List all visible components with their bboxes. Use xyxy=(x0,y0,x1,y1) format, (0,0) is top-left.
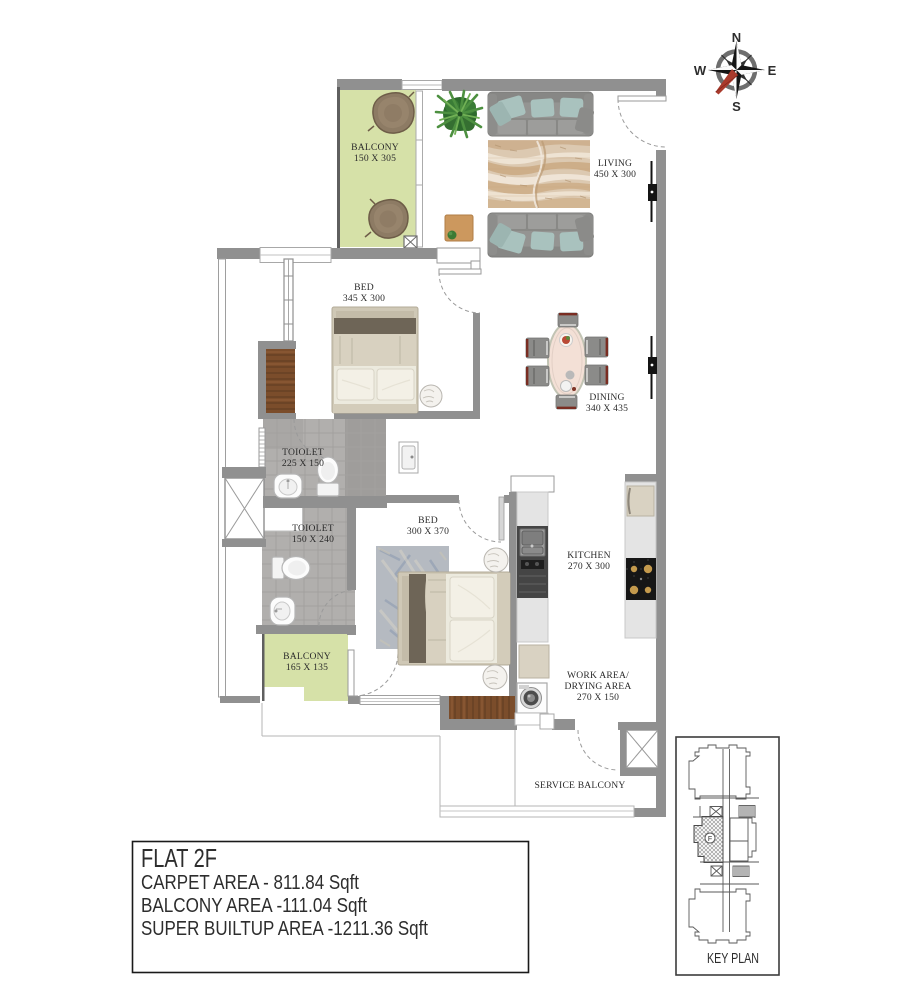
svg-text:150 X 305: 150 X 305 xyxy=(354,153,396,164)
svg-text:FLAT 2F: FLAT 2F xyxy=(141,843,217,873)
svg-text:E: E xyxy=(768,63,777,78)
svg-text:345 X 300: 345 X 300 xyxy=(343,293,385,304)
svg-text:450 X 300: 450 X 300 xyxy=(594,169,636,180)
svg-text:300 X 370: 300 X 370 xyxy=(407,526,449,537)
svg-text:DRYING AREA: DRYING AREA xyxy=(565,681,632,692)
svg-text:W: W xyxy=(694,63,707,78)
svg-text:KITCHEN: KITCHEN xyxy=(567,550,611,561)
svg-text:KEY PLAN: KEY PLAN xyxy=(707,950,759,967)
svg-text:270 X 150: 270 X 150 xyxy=(577,692,619,703)
svg-text:F: F xyxy=(708,836,712,843)
svg-text:LIVING: LIVING xyxy=(598,158,632,169)
svg-text:DINING: DINING xyxy=(589,392,624,403)
svg-text:225 X 150: 225 X 150 xyxy=(282,458,324,469)
svg-text:BALCONY: BALCONY xyxy=(283,651,331,662)
svg-text:150 X 240: 150 X 240 xyxy=(292,534,334,545)
svg-text:BALCONY: BALCONY xyxy=(351,142,399,153)
svg-text:N: N xyxy=(732,30,741,45)
svg-text:BED: BED xyxy=(418,515,438,526)
svg-text:TOIOLET: TOIOLET xyxy=(282,447,324,458)
svg-text:270 X 300: 270 X 300 xyxy=(568,561,610,572)
svg-text:SERVICE BALCONY: SERVICE BALCONY xyxy=(535,780,626,791)
svg-text:340 X 435: 340 X 435 xyxy=(586,403,628,414)
svg-text:165 X 135: 165 X 135 xyxy=(286,662,328,673)
svg-text:WORK AREA/: WORK AREA/ xyxy=(567,670,629,681)
svg-text:BALCONY AREA -111.04 Sqft: BALCONY AREA -111.04 Sqft xyxy=(141,895,367,917)
svg-text:CARPET AREA - 811.84 Sqft: CARPET AREA - 811.84 Sqft xyxy=(141,872,359,894)
svg-text:BED: BED xyxy=(354,282,374,293)
svg-text:TOIOLET: TOIOLET xyxy=(292,523,334,534)
svg-text:SUPER BUILTUP AREA -1211.36 Sq: SUPER BUILTUP AREA -1211.36 Sqft xyxy=(141,918,428,940)
svg-text:S: S xyxy=(732,99,741,114)
